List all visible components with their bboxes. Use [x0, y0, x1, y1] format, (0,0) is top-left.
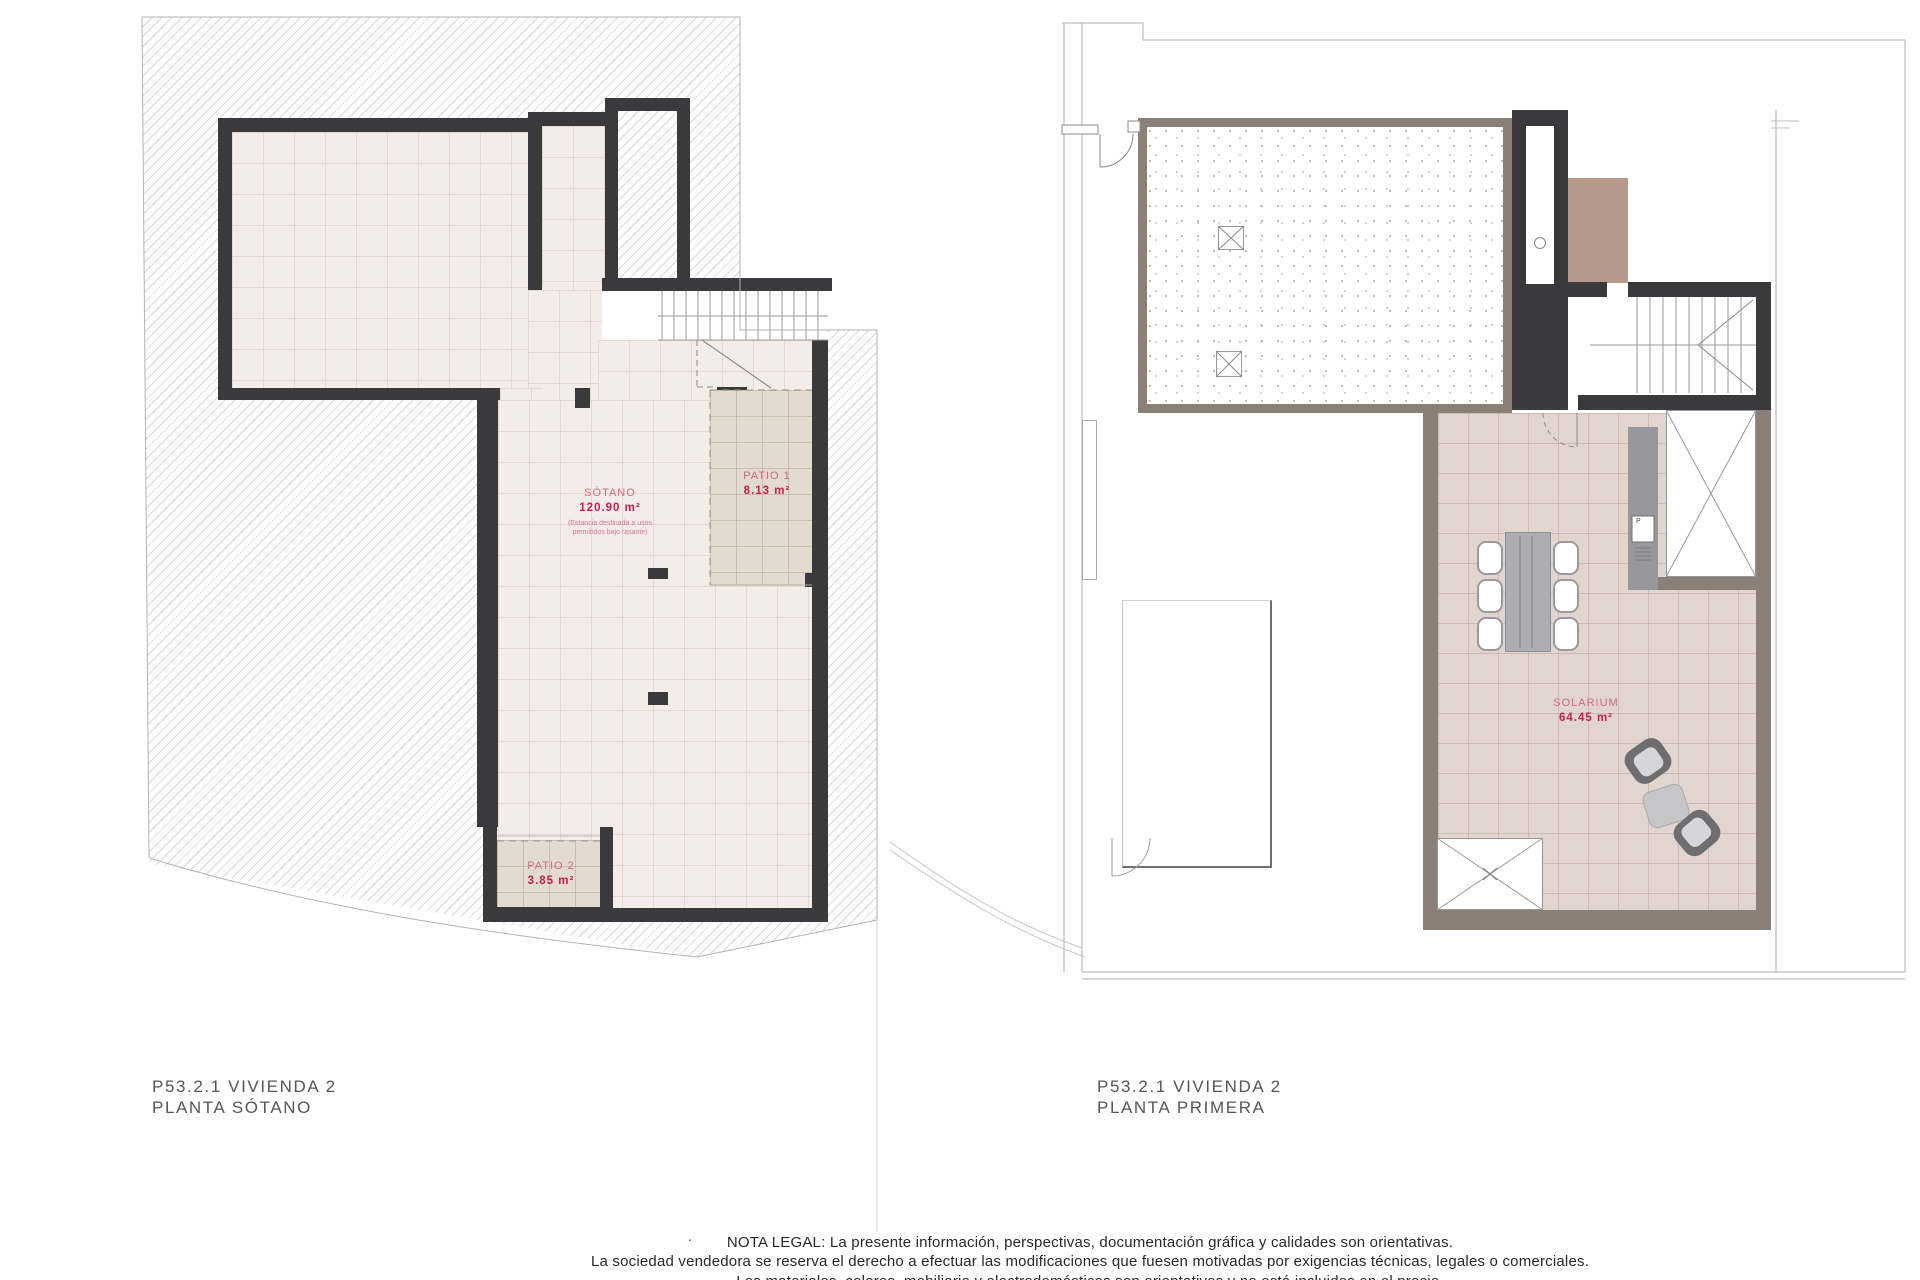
legal-line3: Los materiales, colores, mobiliario y el… [410, 1272, 1770, 1280]
legal-line1: NOTA LEGAL: La presente información, per… [410, 1233, 1770, 1252]
right-stair-floor [1568, 297, 1756, 395]
right-pool [1122, 600, 1272, 868]
dining-chair [1553, 579, 1579, 613]
left-void-room-hatch [618, 111, 677, 278]
room-area: 8.13 m² [743, 484, 791, 498]
appliance-label: P [1636, 518, 1641, 525]
left-leg-wall-bottom [600, 908, 828, 922]
right-skylight-box [1216, 351, 1242, 377]
right-gray-band [1628, 427, 1658, 590]
right-gate-door-top [1062, 121, 1140, 167]
left-plan-title: P53.2.1 VIVIENDA 2 PLANTA SÓTANO [152, 1076, 337, 1118]
left-wall-opening [500, 388, 542, 400]
dining-chair [1477, 541, 1503, 575]
right-solarium-wall-left [1423, 410, 1438, 930]
plan-title-line1: P53.2.1 VIVIENDA 2 [1097, 1076, 1282, 1097]
room-label-patio1: PATIO 1 8.13 m² [743, 470, 791, 498]
dining-table [1505, 532, 1551, 652]
dining-chair [1553, 617, 1579, 651]
left-stair-floor [602, 291, 828, 340]
left-patio2-wall-bottom [483, 907, 613, 922]
plan-title-line1: P53.2.1 VIVIENDA 2 [152, 1076, 337, 1097]
right-stair-wall-bottom [1578, 395, 1771, 410]
left-column [648, 568, 668, 579]
room-area: 64.45 m² [1553, 711, 1618, 725]
room-note: (Estancia destinada a usos [568, 519, 652, 528]
right-stair-wall-right [1756, 282, 1771, 410]
room-label-patio2: PATIO 2 3.85 m² [527, 860, 575, 888]
room-label-solarium: SOLARIUM 64.45 m² [1553, 697, 1618, 725]
right-plan-title: P53.2.1 VIVIENDA 2 PLANTA PRIMERA [1097, 1076, 1282, 1118]
left-patio1-wall-stub [805, 573, 817, 587]
dining-chair [1477, 579, 1503, 613]
left-column [575, 388, 590, 408]
right-skylight-box [1218, 226, 1244, 250]
dining-chair [1553, 541, 1579, 575]
room-name: SOLARIUM [1553, 697, 1618, 711]
left-corridor-floor [542, 126, 607, 290]
right-speckled-room-floor [1147, 127, 1503, 404]
right-chimney-slot [1526, 126, 1554, 284]
floor-plan-sheet: SÓTANO 120.90 m² (Estancia destinada a u… [0, 0, 1920, 1280]
left-column [648, 692, 668, 705]
room-area: 3.85 m² [527, 874, 575, 888]
right-stair-top-wall [1568, 282, 1607, 297]
room-label-sotano: SÓTANO 120.90 m² (Estancia destinada a u… [568, 487, 652, 537]
room-name: PATIO 1 [743, 470, 791, 484]
right-void-box [1666, 410, 1756, 577]
room-name: PATIO 2 [527, 860, 575, 874]
right-stair-top-wall [1628, 282, 1771, 297]
left-leg-wall-left [477, 400, 498, 827]
left-top-room-floor [232, 132, 528, 388]
legal-note: NOTA LEGAL: La presente información, per… [410, 1233, 1770, 1280]
room-name: SÓTANO [568, 487, 652, 501]
room-area: 120.90 m² [568, 501, 652, 515]
room-note: permitidos bajo rasante) [568, 528, 652, 537]
right-boundary-jog [1082, 420, 1097, 580]
left-corridor-top-wall [528, 112, 608, 126]
dining-chair [1477, 617, 1503, 651]
right-solarium-skylight [1437, 838, 1543, 910]
left-stair-top-wall [602, 278, 832, 291]
left-floor-patch [528, 290, 608, 400]
left-leg-wall-right [812, 340, 828, 922]
right-solarium-wall-bottom [1423, 910, 1771, 930]
right-solarium-wall-right [1756, 410, 1771, 930]
plan-title-line2: PLANTA PRIMERA [1097, 1097, 1282, 1118]
legal-line2: La sociedad vendedora se reserva el dere… [410, 1252, 1770, 1271]
right-band-wall [1658, 577, 1756, 590]
right-brown-volume [1568, 178, 1628, 283]
plan-title-line2: PLANTA SÓTANO [152, 1097, 337, 1118]
right-contour-curves [890, 842, 1085, 957]
